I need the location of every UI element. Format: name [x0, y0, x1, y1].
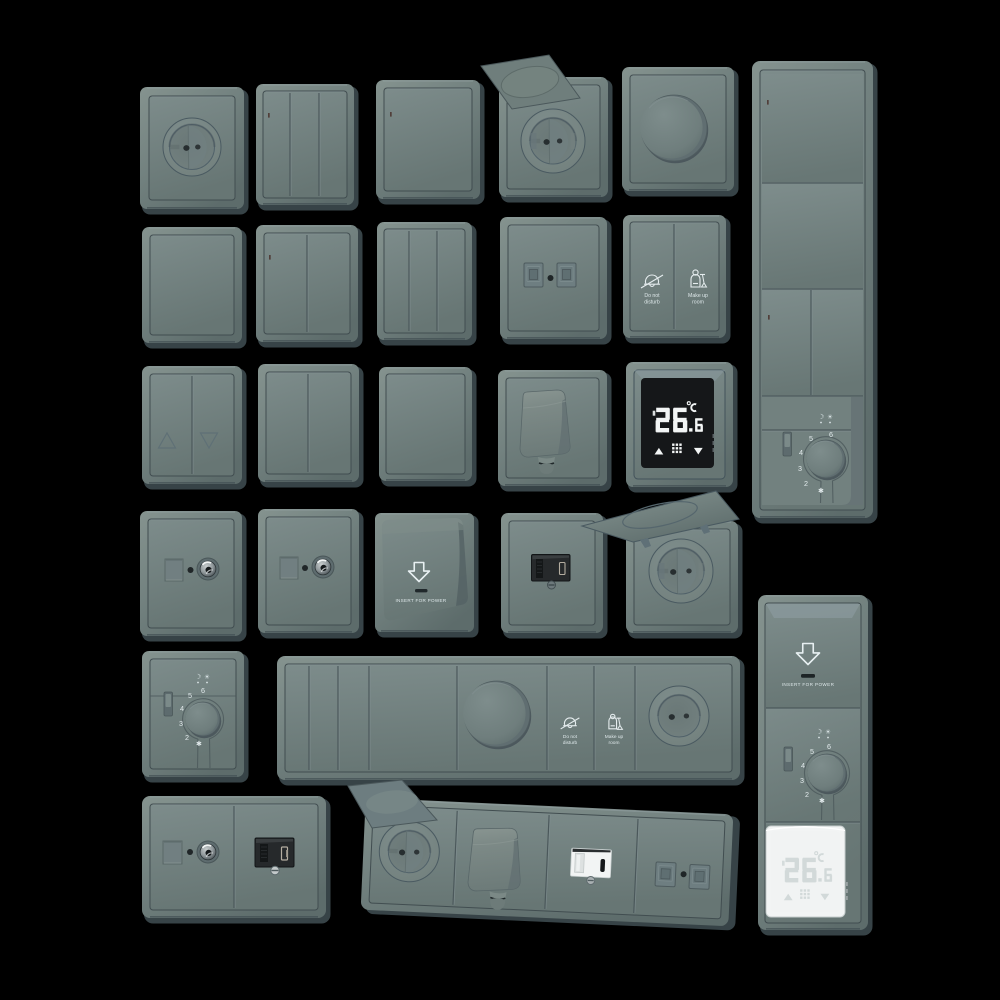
svg-text:Do not: Do not: [644, 293, 660, 299]
svg-text:4: 4: [799, 448, 803, 457]
svg-text:5: 5: [809, 434, 813, 443]
svg-text:2: 2: [804, 479, 808, 488]
svg-text:disturb: disturb: [644, 299, 660, 305]
svg-text:✱: ✱: [196, 739, 202, 748]
svg-text:4: 4: [801, 761, 805, 770]
svg-text:Make up: Make up: [605, 734, 624, 740]
svg-text:✱: ✱: [818, 486, 824, 495]
svg-text:☀: ☀: [825, 728, 831, 736]
svg-text:☽: ☽: [816, 728, 822, 736]
svg-text:6: 6: [201, 686, 205, 695]
svg-text:INSERT FOR POWER: INSERT FOR POWER: [395, 598, 446, 603]
svg-text:Make up: Make up: [688, 293, 708, 299]
svg-text:3: 3: [179, 719, 183, 728]
svg-text:6: 6: [827, 742, 831, 751]
svg-text:INSERT FOR POWER: INSERT FOR POWER: [782, 682, 835, 687]
svg-text:☀: ☀: [204, 673, 210, 681]
svg-text:3: 3: [798, 464, 802, 473]
svg-text:room: room: [692, 299, 704, 305]
svg-text:☽: ☽: [818, 413, 824, 421]
svg-text:disturb: disturb: [563, 740, 578, 746]
svg-text:4: 4: [180, 704, 184, 713]
svg-text:room: room: [609, 740, 620, 746]
svg-text:2: 2: [805, 790, 809, 799]
svg-text:6: 6: [829, 430, 833, 439]
svg-text:☀: ☀: [827, 413, 833, 421]
svg-text:5: 5: [810, 747, 814, 756]
svg-text:Do not: Do not: [563, 734, 578, 740]
svg-text:✱: ✱: [819, 796, 825, 805]
svg-text:3: 3: [800, 776, 804, 785]
svg-text:2: 2: [185, 733, 189, 742]
svg-text:5: 5: [188, 691, 192, 700]
svg-text:☽: ☽: [195, 673, 201, 681]
